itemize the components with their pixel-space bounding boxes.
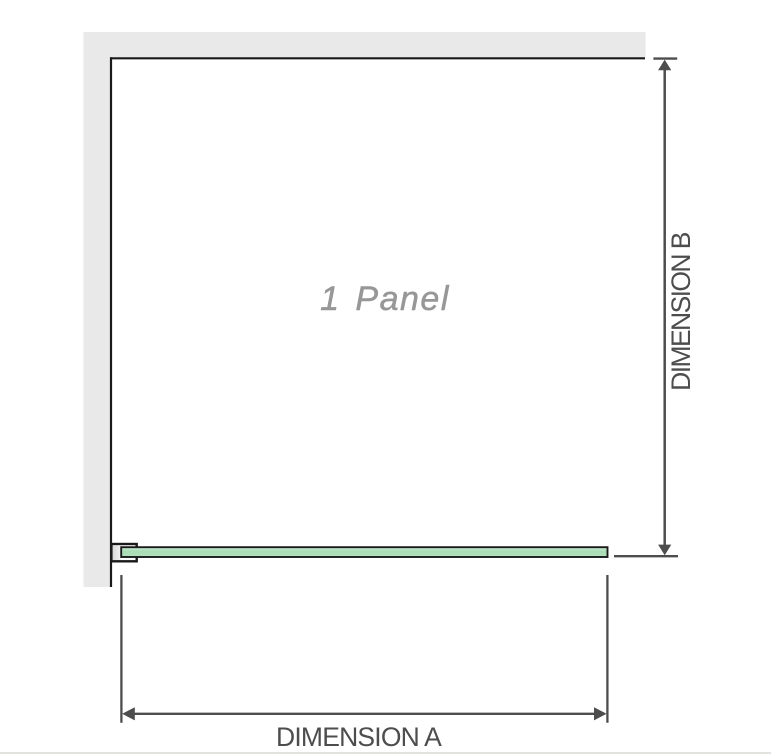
svg-text:DIMENSION B: DIMENSION B bbox=[666, 232, 696, 391]
svg-text:DIMENSION A: DIMENSION A bbox=[276, 722, 442, 752]
svg-text:1 Panel: 1 Panel bbox=[320, 280, 450, 318]
